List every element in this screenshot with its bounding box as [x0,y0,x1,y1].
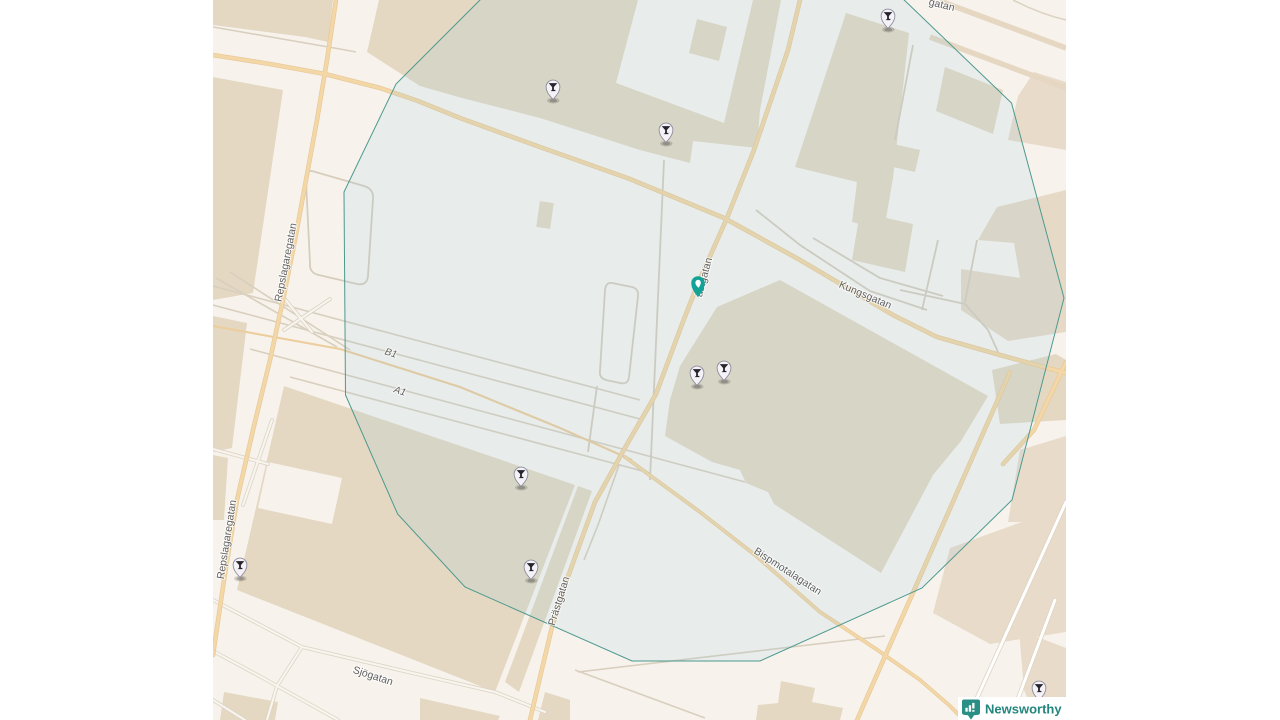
svg-text:Newsworthy: Newsworthy [985,702,1062,717]
